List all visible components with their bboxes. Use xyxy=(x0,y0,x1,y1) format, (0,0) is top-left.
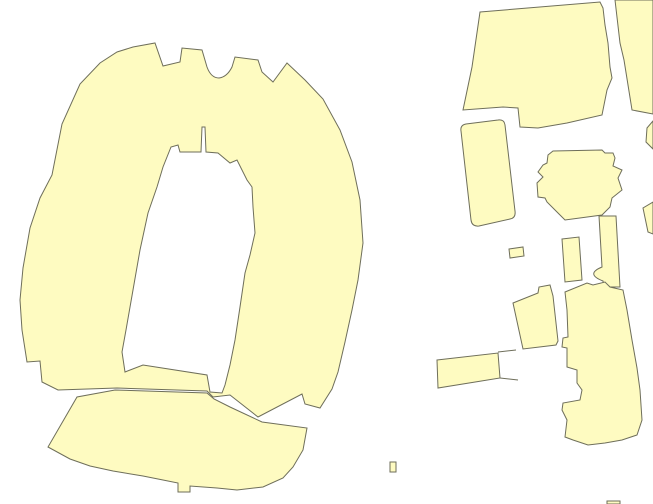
feature-building-cross[interactable] xyxy=(537,150,622,220)
feature-building-rounded-rect[interactable] xyxy=(461,120,515,226)
map-canvas-svg[interactable] xyxy=(0,0,653,504)
feature-horizontal-bar-spike-lower[interactable] xyxy=(500,378,518,380)
feature-stadium-horseshoe[interactable] xyxy=(20,43,363,417)
feature-building-top-right-edge[interactable] xyxy=(615,0,653,114)
feature-building-right-edge-sliver-lower[interactable] xyxy=(643,202,653,234)
feature-building-south-complex[interactable] xyxy=(562,282,642,445)
feature-building-small-vertical-rect[interactable] xyxy=(562,237,582,282)
feature-building-horizontal-bar[interactable] xyxy=(437,353,500,388)
feature-building-tiny-square[interactable] xyxy=(509,247,524,258)
feature-tiny-speck[interactable] xyxy=(390,462,396,472)
feature-building-notched-rect[interactable] xyxy=(513,285,558,349)
feature-corridor-with-round-bump[interactable] xyxy=(594,216,620,287)
feature-building-right-edge-sliver-upper[interactable] xyxy=(646,121,653,149)
feature-building-north-trapezoid[interactable] xyxy=(463,2,612,128)
map-canvas[interactable] xyxy=(0,0,653,504)
feature-horizontal-bar-spike-upper[interactable] xyxy=(498,350,516,352)
